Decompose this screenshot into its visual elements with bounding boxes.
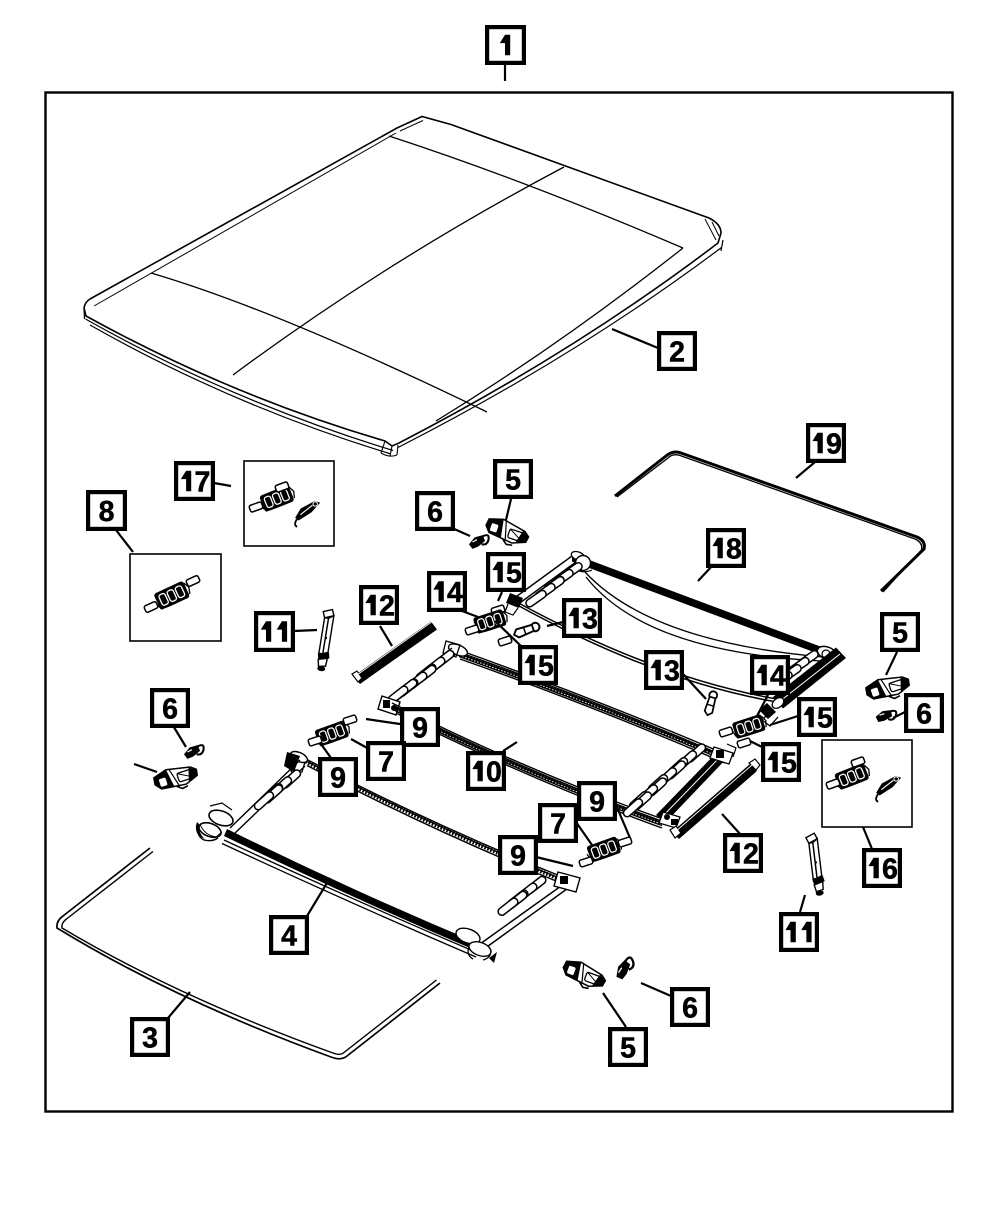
svg-text:3: 3 <box>582 603 598 635</box>
svg-text:3: 3 <box>664 655 680 687</box>
svg-text:7: 7 <box>194 466 210 498</box>
svg-text:0: 0 <box>486 756 502 788</box>
svg-text:9: 9 <box>826 428 842 460</box>
svg-text:9: 9 <box>412 712 428 744</box>
svg-text:5: 5 <box>538 650 554 682</box>
svg-text:8: 8 <box>99 496 115 528</box>
svg-text:6: 6 <box>427 496 443 528</box>
svg-text:2: 2 <box>669 336 685 368</box>
svg-text:4: 4 <box>770 660 786 692</box>
svg-text:5: 5 <box>506 557 522 589</box>
svg-text:7: 7 <box>378 746 394 778</box>
svg-text:2: 2 <box>743 838 759 870</box>
svg-text:9: 9 <box>330 762 346 794</box>
svg-text:6: 6 <box>916 698 932 730</box>
svg-text:6: 6 <box>682 992 698 1024</box>
svg-text:4: 4 <box>281 920 297 952</box>
svg-text:8: 8 <box>726 533 742 565</box>
svg-text:6: 6 <box>882 853 898 885</box>
svg-text:5: 5 <box>505 464 521 496</box>
svg-text:3: 3 <box>142 1022 158 1054</box>
svg-text:2: 2 <box>379 590 395 622</box>
svg-text:9: 9 <box>510 840 526 872</box>
svg-text:5: 5 <box>620 1032 636 1064</box>
svg-text:4: 4 <box>447 577 463 609</box>
svg-text:5: 5 <box>892 617 908 649</box>
svg-text:5: 5 <box>817 702 833 734</box>
svg-text:7: 7 <box>550 808 566 840</box>
svg-text:6: 6 <box>162 693 178 725</box>
svg-text:9: 9 <box>589 786 605 818</box>
svg-text:5: 5 <box>781 747 797 779</box>
